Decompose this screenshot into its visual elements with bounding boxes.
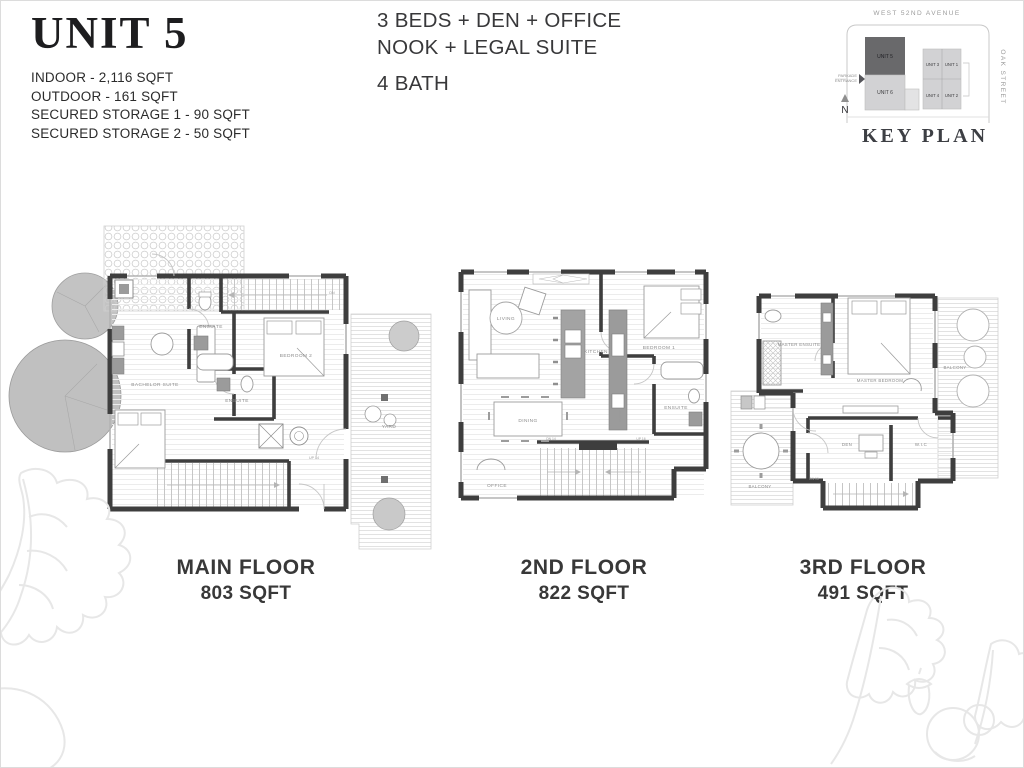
keyplan-flex-box xyxy=(905,89,919,110)
entry-storage xyxy=(115,280,133,298)
kitchenette xyxy=(112,326,124,374)
stairs-up-label: UP 14 xyxy=(309,456,319,460)
room-label-master-bedroom: MASTER BEDROOM xyxy=(857,378,903,383)
second-floor-plan: LIVING KITCHEN BEDROOM 1 ENSUITE PANTRY … xyxy=(449,244,719,544)
oak-leaf-icon xyxy=(831,588,945,764)
bed-icon xyxy=(848,298,910,374)
room-label-master-ensuite: MASTER ENSUITE xyxy=(778,342,821,347)
main-floor-caption: MAIN FLOOR 803 SQFT xyxy=(131,556,361,605)
north-arrow-icon xyxy=(841,94,849,102)
room-label-bachelor-suite: BACHELOR SUITE xyxy=(131,382,178,388)
floor-area: 491 SQFT xyxy=(748,583,978,605)
toilet-icon xyxy=(241,376,253,392)
summary-bath: 4 BATH xyxy=(377,70,621,97)
bed-icon xyxy=(264,318,324,376)
room-label-dining: DINING xyxy=(518,418,537,424)
room-label-bedroom1: BEDROOM 1 xyxy=(643,345,675,351)
room-label-balcony-right: BALCONY xyxy=(943,365,966,370)
planter-icon xyxy=(381,476,388,483)
parkade-label-2: ENTRANCE xyxy=(835,78,857,83)
planter-icon xyxy=(957,309,989,341)
room-label-ensuite: ENSUITE xyxy=(664,405,688,411)
shower-icon xyxy=(763,341,781,385)
bathtub-icon xyxy=(661,362,703,379)
floorplan-sheet: UNIT 5 INDOOR - 2,116 SQFT OUTDOOR - 161… xyxy=(0,0,1024,768)
planter-icon xyxy=(957,375,989,407)
cooktop-icon xyxy=(565,345,581,358)
floor-name: 3RD FLOOR xyxy=(748,556,978,580)
oak-leaf-icon xyxy=(975,640,1024,744)
key-plan-map: WEST 52ND AVENUE UNIT 5 UNIT 6 UNIT 3 UN… xyxy=(827,5,1023,125)
toilet-icon xyxy=(689,389,700,403)
sink-icon xyxy=(823,313,831,322)
yard-area xyxy=(351,314,431,549)
summary-line2: NOOK + LEGAL SUITE xyxy=(377,34,621,61)
table-icon xyxy=(151,333,173,355)
bed-icon xyxy=(644,286,701,338)
floor-area: 803 SQFT xyxy=(131,583,361,605)
third-floor-caption: 3RD FLOOR 491 SQFT xyxy=(748,556,978,605)
main-floor-plan: ENSUITE BEDROOM 2 BACHELOR SUITE ENSUITE… xyxy=(59,214,439,559)
stairs-dn-label: DN 14 xyxy=(546,437,556,441)
sink-icon xyxy=(565,330,581,343)
tree-icon xyxy=(389,321,419,351)
keyplan-unit3-label: UNIT 3 xyxy=(926,62,940,67)
room-label-pantry: PANTRY xyxy=(618,410,622,422)
third-floor-plan: MASTER ENSUITE MASTER BEDROOM BALCONY DE… xyxy=(723,283,1013,558)
north-label: N xyxy=(841,105,848,116)
second-floor-caption: 2ND FLOOR 822 SQFT xyxy=(469,556,699,605)
stairs xyxy=(539,443,647,496)
stairs-dn-label: DN xyxy=(329,291,335,295)
floor-area: 822 SQFT xyxy=(469,583,699,605)
room-label-den: DEN xyxy=(842,442,852,447)
dresser-icon xyxy=(843,406,898,413)
laundry-icon xyxy=(259,424,308,448)
stairs-dn-label: DN 16 xyxy=(809,477,819,481)
room-label-ensuite-lower: ENSUITE xyxy=(225,398,249,404)
sink-icon xyxy=(194,336,208,350)
room-label-ensuite-upper: ENSUITE xyxy=(199,324,223,330)
planter-icon xyxy=(381,394,388,401)
sofa-icon xyxy=(477,354,539,378)
stairs-up-label: UP 16 xyxy=(636,437,645,441)
acorn-icon xyxy=(907,668,931,714)
keyplan-unit4-label: UNIT 4 xyxy=(926,93,940,98)
room-label-office: OFFICE xyxy=(487,483,507,489)
stat-storage1: SECURED STORAGE 1 - 90 SQFT xyxy=(31,106,250,125)
room-label-bedroom2: BEDROOM 2 xyxy=(280,353,312,359)
parkade-arrow-icon xyxy=(859,74,865,84)
unit-summary: 3 BEDS + DEN + OFFICE NOOK + LEGAL SUITE… xyxy=(377,7,621,97)
planter-icon xyxy=(964,346,986,368)
unit-info-block: UNIT 5 INDOOR - 2,116 SQFT OUTDOOR - 161… xyxy=(31,11,250,143)
toilet-icon xyxy=(765,310,781,322)
street-right-label: OAK STREET xyxy=(999,49,1006,104)
table-icon xyxy=(743,433,779,469)
key-plan: WEST 52ND AVENUE UNIT 5 UNIT 6 UNIT 3 UN… xyxy=(827,5,1023,148)
stairs xyxy=(825,483,916,506)
keyplan-bracket xyxy=(963,63,969,96)
sink-icon xyxy=(689,412,702,426)
bed-icon xyxy=(115,410,165,468)
unit-stats: INDOOR - 2,116 SQFT OUTDOOR - 161 SQFT S… xyxy=(31,69,250,143)
keyplan-unit2-label: UNIT 2 xyxy=(945,93,959,98)
tree-icon xyxy=(373,498,405,530)
room-label-yard: YARD xyxy=(382,424,397,430)
keyplan-unit6-label: UNIT 6 xyxy=(877,90,893,96)
stat-storage2: SECURED STORAGE 2 - 50 SQFT xyxy=(31,125,250,144)
patio-chair-icon xyxy=(365,406,381,422)
key-plan-title: KEY PLAN xyxy=(827,125,1023,148)
stat-outdoor: OUTDOOR - 161 SQFT xyxy=(31,88,250,107)
fridge-icon xyxy=(612,394,624,408)
floor-name: MAIN FLOOR xyxy=(131,556,361,580)
room-label-balcony-left: BALCONY xyxy=(748,484,771,489)
unit-title: UNIT 5 xyxy=(31,11,250,56)
leaf-decoration-right xyxy=(795,584,1024,768)
acorn-cap-icon xyxy=(927,705,994,761)
stat-indoor: INDOOR - 2,116 SQFT xyxy=(31,69,250,88)
street-top-label: WEST 52ND AVENUE xyxy=(873,10,960,17)
sink-icon xyxy=(823,355,831,364)
floor-name: 2ND FLOOR xyxy=(469,556,699,580)
bedroom2-furniture xyxy=(264,318,324,376)
room-label-kitchen: KITCHEN xyxy=(584,349,608,355)
sofa-icon xyxy=(469,290,491,360)
window-seat xyxy=(533,274,589,284)
range-icon xyxy=(612,334,624,356)
bathtub-icon xyxy=(197,354,233,370)
keyplan-unit1-label: UNIT 1 xyxy=(945,62,959,67)
room-label-living: LIVING xyxy=(497,316,515,322)
room-label-wic: W.I.C xyxy=(915,442,927,447)
sink-icon xyxy=(217,378,230,391)
summary-line1: 3 BEDS + DEN + OFFICE xyxy=(377,7,621,34)
keyplan-unit5-label: UNIT 5 xyxy=(877,54,893,60)
